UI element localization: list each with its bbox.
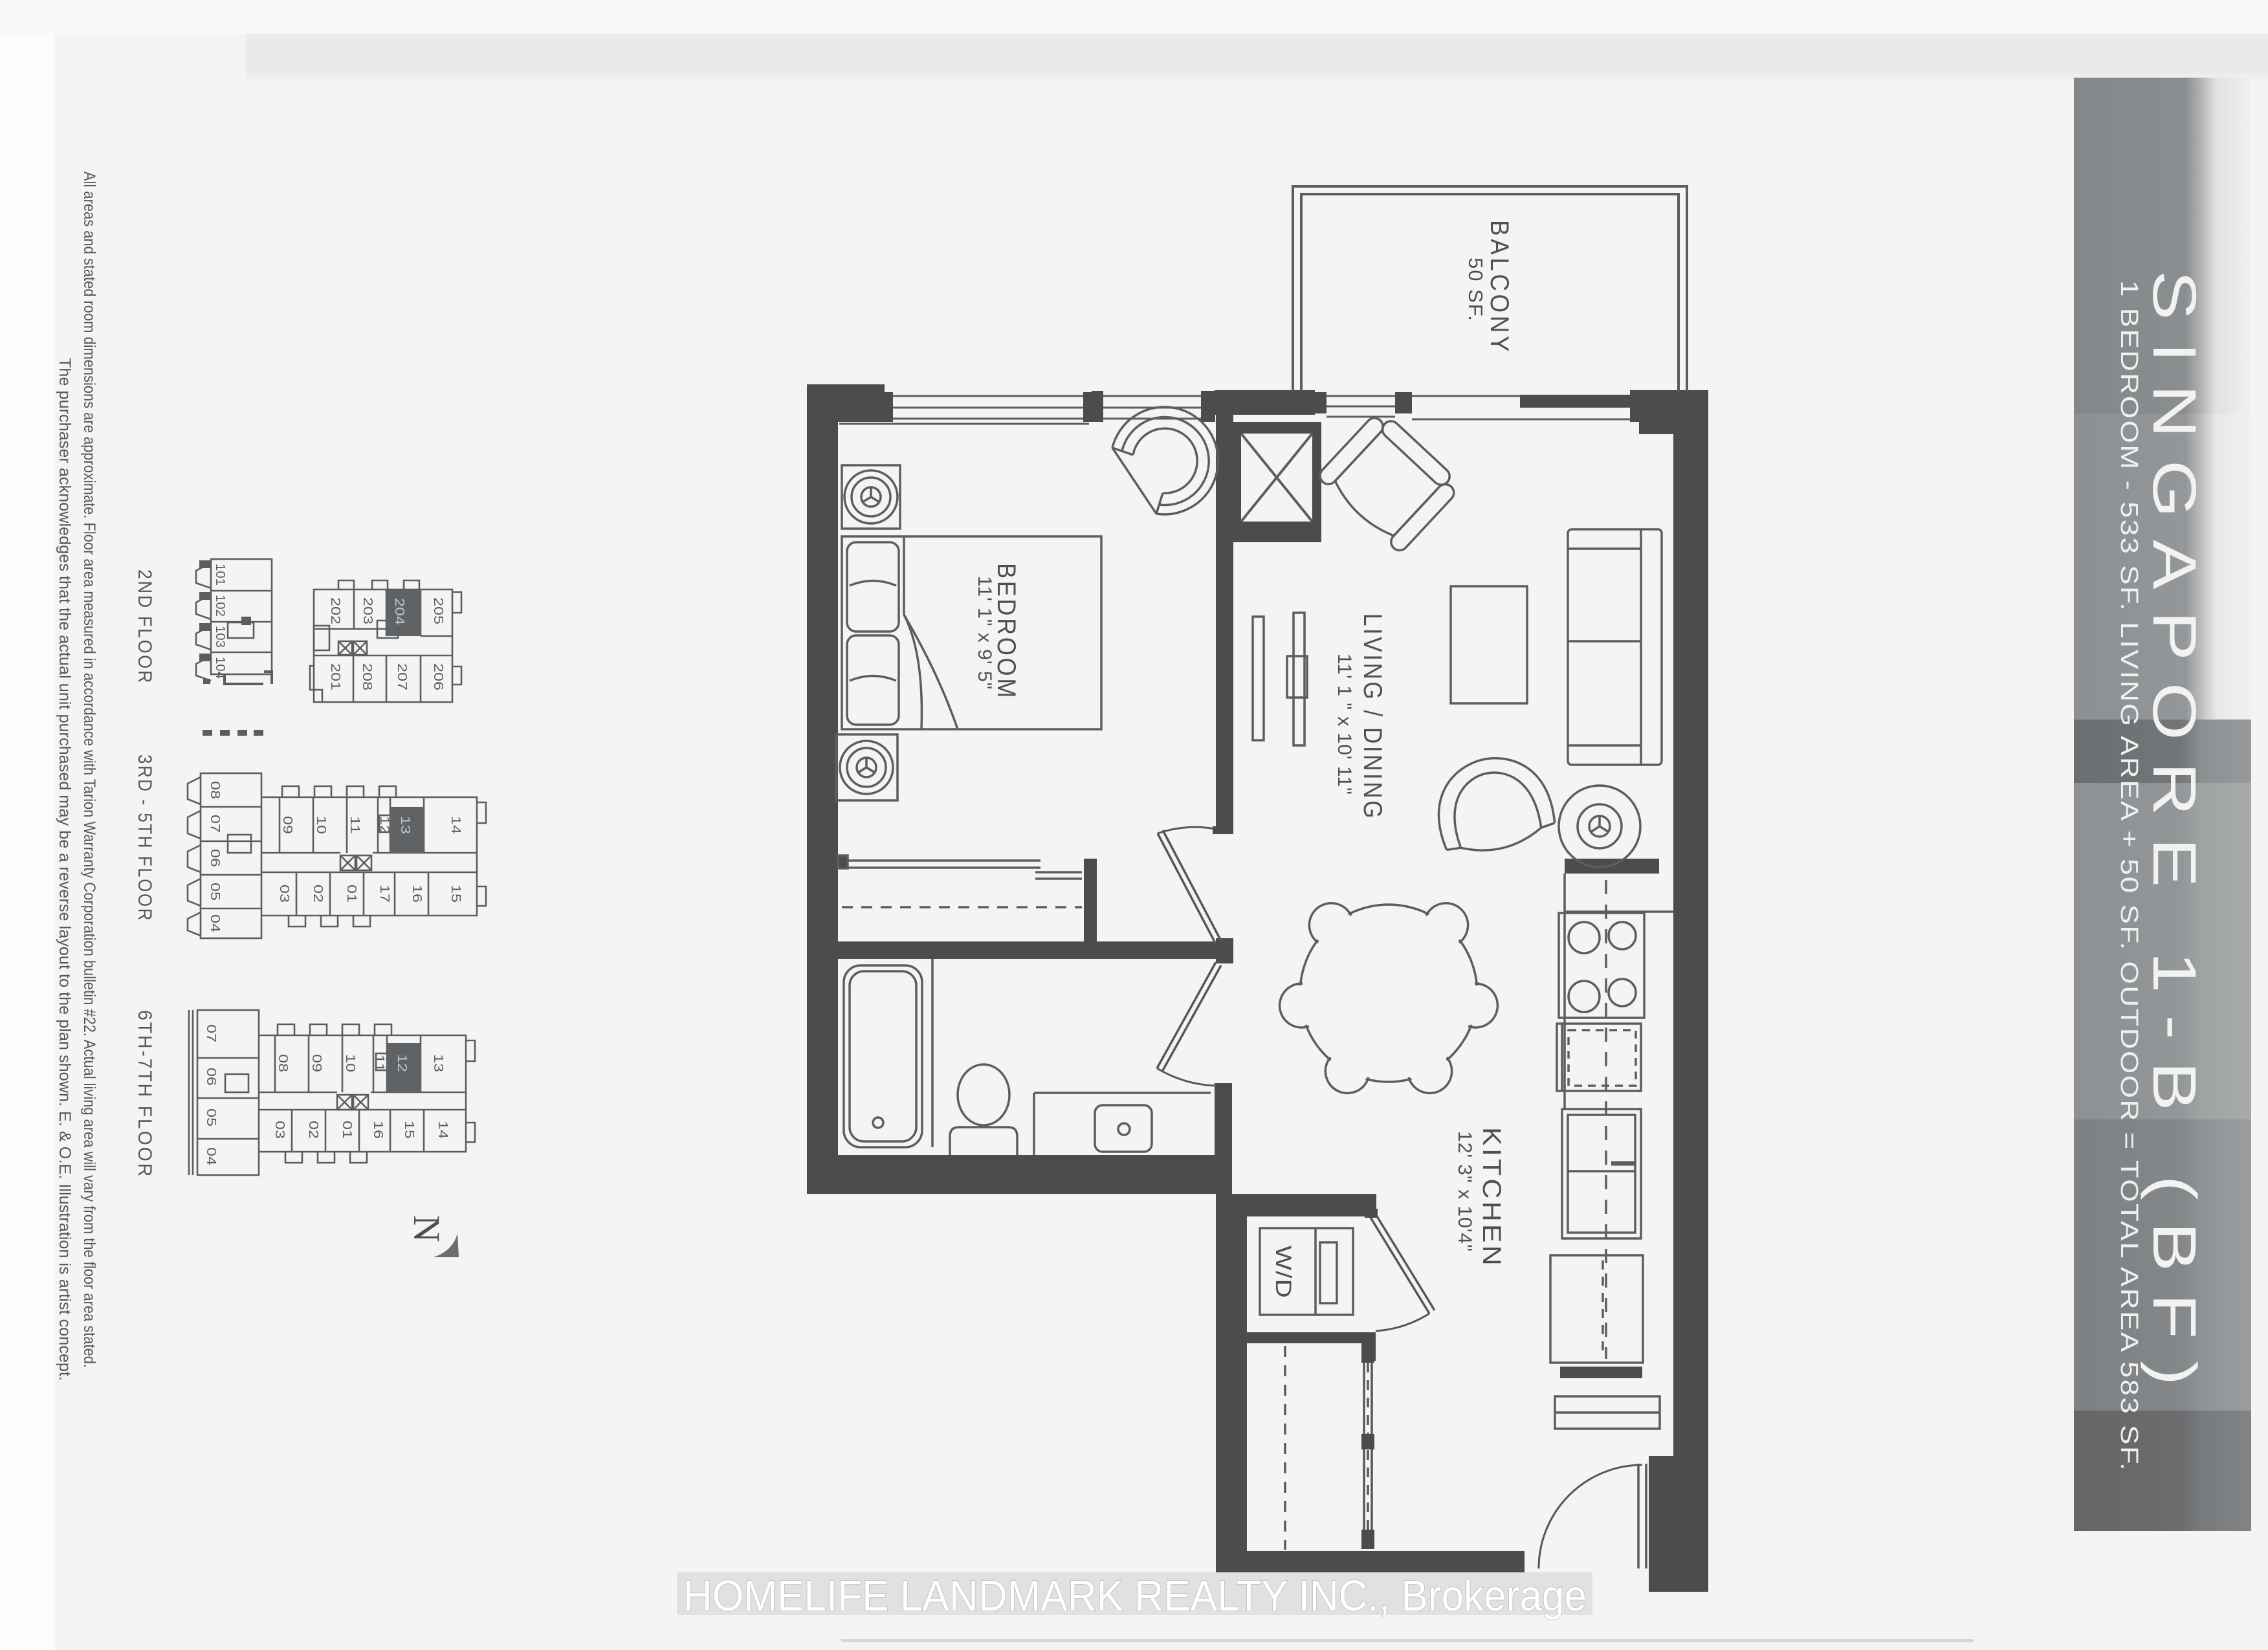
svg-text:203: 203 — [360, 597, 375, 624]
svg-text:3RD - 5TH FLOOR: 3RD - 5TH FLOOR — [134, 754, 155, 922]
svg-text:08: 08 — [208, 781, 222, 799]
svg-text:09: 09 — [309, 1054, 324, 1072]
svg-text:50 SF.: 50 SF. — [1464, 258, 1487, 322]
svg-text:All areas and stated room dime: All areas and stated room dimensions are… — [80, 171, 98, 1368]
svg-text:12: 12 — [377, 816, 391, 834]
svg-text:KITCHEN: KITCHEN — [1477, 1127, 1506, 1268]
svg-text:17: 17 — [377, 885, 391, 903]
svg-text:201: 201 — [328, 663, 342, 690]
svg-text:16: 16 — [410, 885, 424, 903]
svg-text:05: 05 — [204, 1108, 218, 1127]
svg-text:06: 06 — [204, 1068, 218, 1086]
svg-text:101: 101 — [213, 564, 227, 586]
svg-text:13: 13 — [398, 816, 412, 834]
svg-text:14: 14 — [448, 816, 463, 834]
svg-text:LIVING / DINING: LIVING / DINING — [1358, 613, 1387, 820]
svg-text:16: 16 — [371, 1121, 385, 1139]
svg-text:06: 06 — [208, 849, 222, 867]
svg-text:11: 11 — [347, 816, 362, 834]
svg-text:07: 07 — [204, 1024, 218, 1042]
svg-text:206: 206 — [431, 663, 445, 690]
svg-text:05: 05 — [208, 883, 222, 901]
svg-text:12: 12 — [395, 1054, 409, 1072]
svg-text:15: 15 — [402, 1121, 416, 1139]
svg-text:08: 08 — [276, 1054, 290, 1072]
svg-text:BEDROOM: BEDROOM — [992, 563, 1020, 700]
svg-text:204: 204 — [392, 598, 406, 625]
svg-text:BALCONY: BALCONY — [1485, 220, 1514, 355]
svg-text:07: 07 — [208, 815, 222, 833]
svg-text:14: 14 — [435, 1121, 450, 1139]
svg-text:102: 102 — [213, 595, 227, 617]
svg-text:04: 04 — [208, 914, 222, 932]
svg-text:103: 103 — [213, 626, 227, 648]
svg-text:2ND FLOOR: 2ND FLOOR — [134, 569, 155, 685]
svg-text:03: 03 — [277, 885, 291, 903]
svg-text:6TH-7TH FLOOR: 6TH-7TH FLOOR — [134, 1010, 155, 1178]
svg-text:207: 207 — [395, 663, 409, 690]
svg-text:01: 01 — [344, 885, 358, 903]
svg-text:205: 205 — [431, 597, 445, 624]
svg-text:11' 1 " x 10' 11": 11' 1 " x 10' 11" — [1334, 654, 1355, 795]
svg-text:12' 3" x 10'4": 12' 3" x 10'4" — [1454, 1131, 1475, 1252]
svg-text:10: 10 — [314, 816, 328, 834]
svg-text:03: 03 — [272, 1121, 287, 1139]
svg-text:11' 1" x 9' 5": 11' 1" x 9' 5" — [974, 576, 995, 690]
svg-text:13: 13 — [431, 1054, 445, 1072]
svg-text:15: 15 — [448, 885, 463, 903]
svg-text:10: 10 — [343, 1054, 357, 1072]
svg-text:The purchaser acknowledges tha: The purchaser acknowledges that the actu… — [56, 358, 74, 1381]
svg-text:11: 11 — [372, 1054, 386, 1072]
svg-text:01: 01 — [340, 1121, 354, 1139]
svg-text:09: 09 — [280, 816, 294, 834]
svg-text:SINGAPORE 1-B (BF): SINGAPORE 1-B (BF) — [2140, 270, 2208, 1407]
svg-text:208: 208 — [360, 663, 374, 690]
svg-text:04: 04 — [204, 1147, 218, 1165]
svg-text:104: 104 — [213, 657, 227, 679]
svg-text:W/D: W/D — [1271, 1246, 1295, 1299]
svg-text:02: 02 — [311, 885, 325, 903]
svg-text:202: 202 — [328, 597, 342, 624]
svg-text:1 BEDROOM - 533 SF. LIVING ARE: 1 BEDROOM - 533 SF. LIVING AREA + 50 SF.… — [2115, 280, 2142, 1472]
svg-text:02: 02 — [306, 1121, 320, 1139]
svg-text:N: N — [406, 1215, 448, 1242]
svg-text:HOMELIFE LANDMARK REALTY INC.,: HOMELIFE LANDMARK REALTY INC., Brokerage — [683, 1572, 1587, 1620]
